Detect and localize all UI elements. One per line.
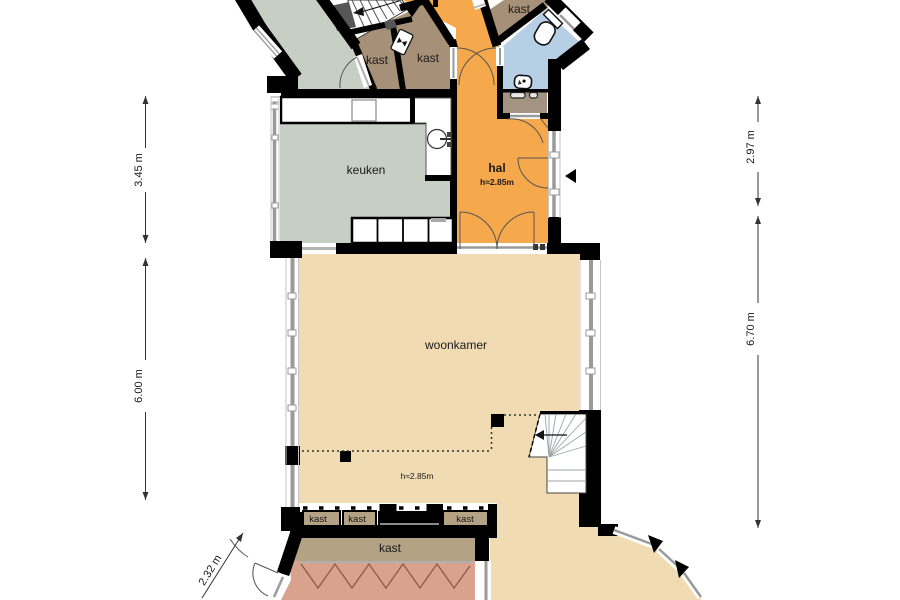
svg-text:kast: kast [456,514,474,525]
svg-text:woonkamer: woonkamer [424,338,487,352]
svg-text:kast: kast [417,51,440,65]
svg-text:h≈2.85m: h≈2.85m [400,471,433,481]
svg-text:h≈2.85m: h≈2.85m [480,177,514,187]
svg-text:hal: hal [488,161,505,175]
svg-text:6.00 m: 6.00 m [133,369,145,403]
svg-text:kast: kast [348,514,366,525]
svg-text:keuken: keuken [347,163,386,177]
svg-text:3.45 m: 3.45 m [133,153,145,187]
svg-text:kast: kast [379,541,402,555]
svg-text:2.97 m: 2.97 m [745,130,757,164]
svg-text:kast: kast [508,2,531,16]
svg-text:6.70 m: 6.70 m [745,312,757,346]
svg-text:kast: kast [309,514,327,525]
svg-text:kast: kast [366,53,389,67]
